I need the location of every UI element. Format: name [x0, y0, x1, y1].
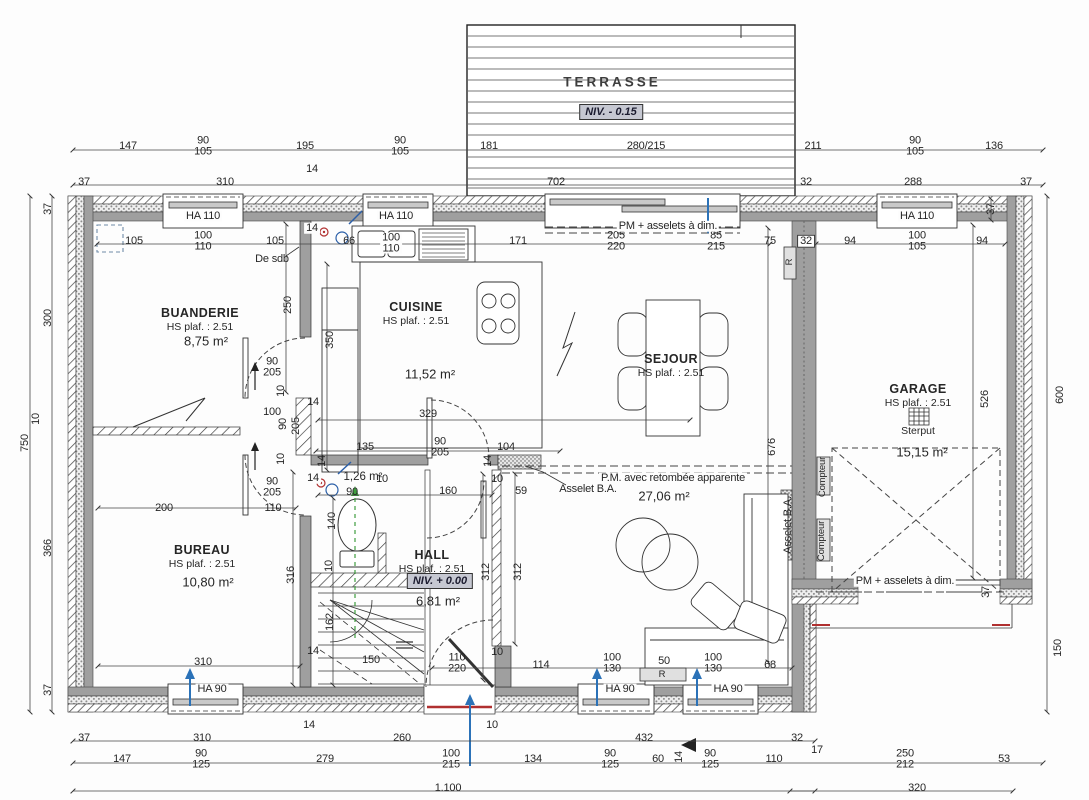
- beam-lines: [502, 466, 792, 473]
- hall-level-badge: NIV. + 0.00: [407, 573, 473, 589]
- terrasse-level-badge: NIV. - 0.15: [579, 104, 643, 120]
- windows: [163, 194, 1012, 714]
- drainer-icon: [419, 229, 468, 260]
- side-table-icon: [616, 518, 670, 572]
- chair-icon: [698, 367, 728, 410]
- dining-table-icon: [646, 300, 700, 436]
- radiator-icon: [784, 247, 796, 279]
- section-mark-icon: [557, 312, 575, 376]
- meter-box-icon: [817, 519, 830, 561]
- radiator-icon: [640, 668, 686, 681]
- chair-icon: [618, 313, 648, 356]
- dining-set: [618, 300, 728, 436]
- floorplan-drawing: [0, 0, 1089, 800]
- garage-items: [817, 408, 1000, 592]
- toilet-icon: [338, 499, 376, 567]
- floorplan-sheet: 14790 10519590 105181280/21521190 105136…: [0, 0, 1089, 800]
- room-name-terrasse: TERRASSE: [563, 75, 661, 90]
- chair-icon: [618, 367, 648, 410]
- chair-icon: [698, 313, 728, 356]
- cooktop-icon: [477, 282, 519, 344]
- interior-walls: [93, 221, 792, 687]
- appliance-slot: [97, 225, 123, 252]
- ventilation-arrows: [185, 198, 713, 766]
- sterput-drain-icon: [909, 408, 929, 425]
- meter-box-icon: [817, 457, 830, 495]
- exterior-walls: [68, 196, 1032, 712]
- entry-marker-icon: [681, 738, 696, 752]
- section-mark-icon: [133, 398, 205, 427]
